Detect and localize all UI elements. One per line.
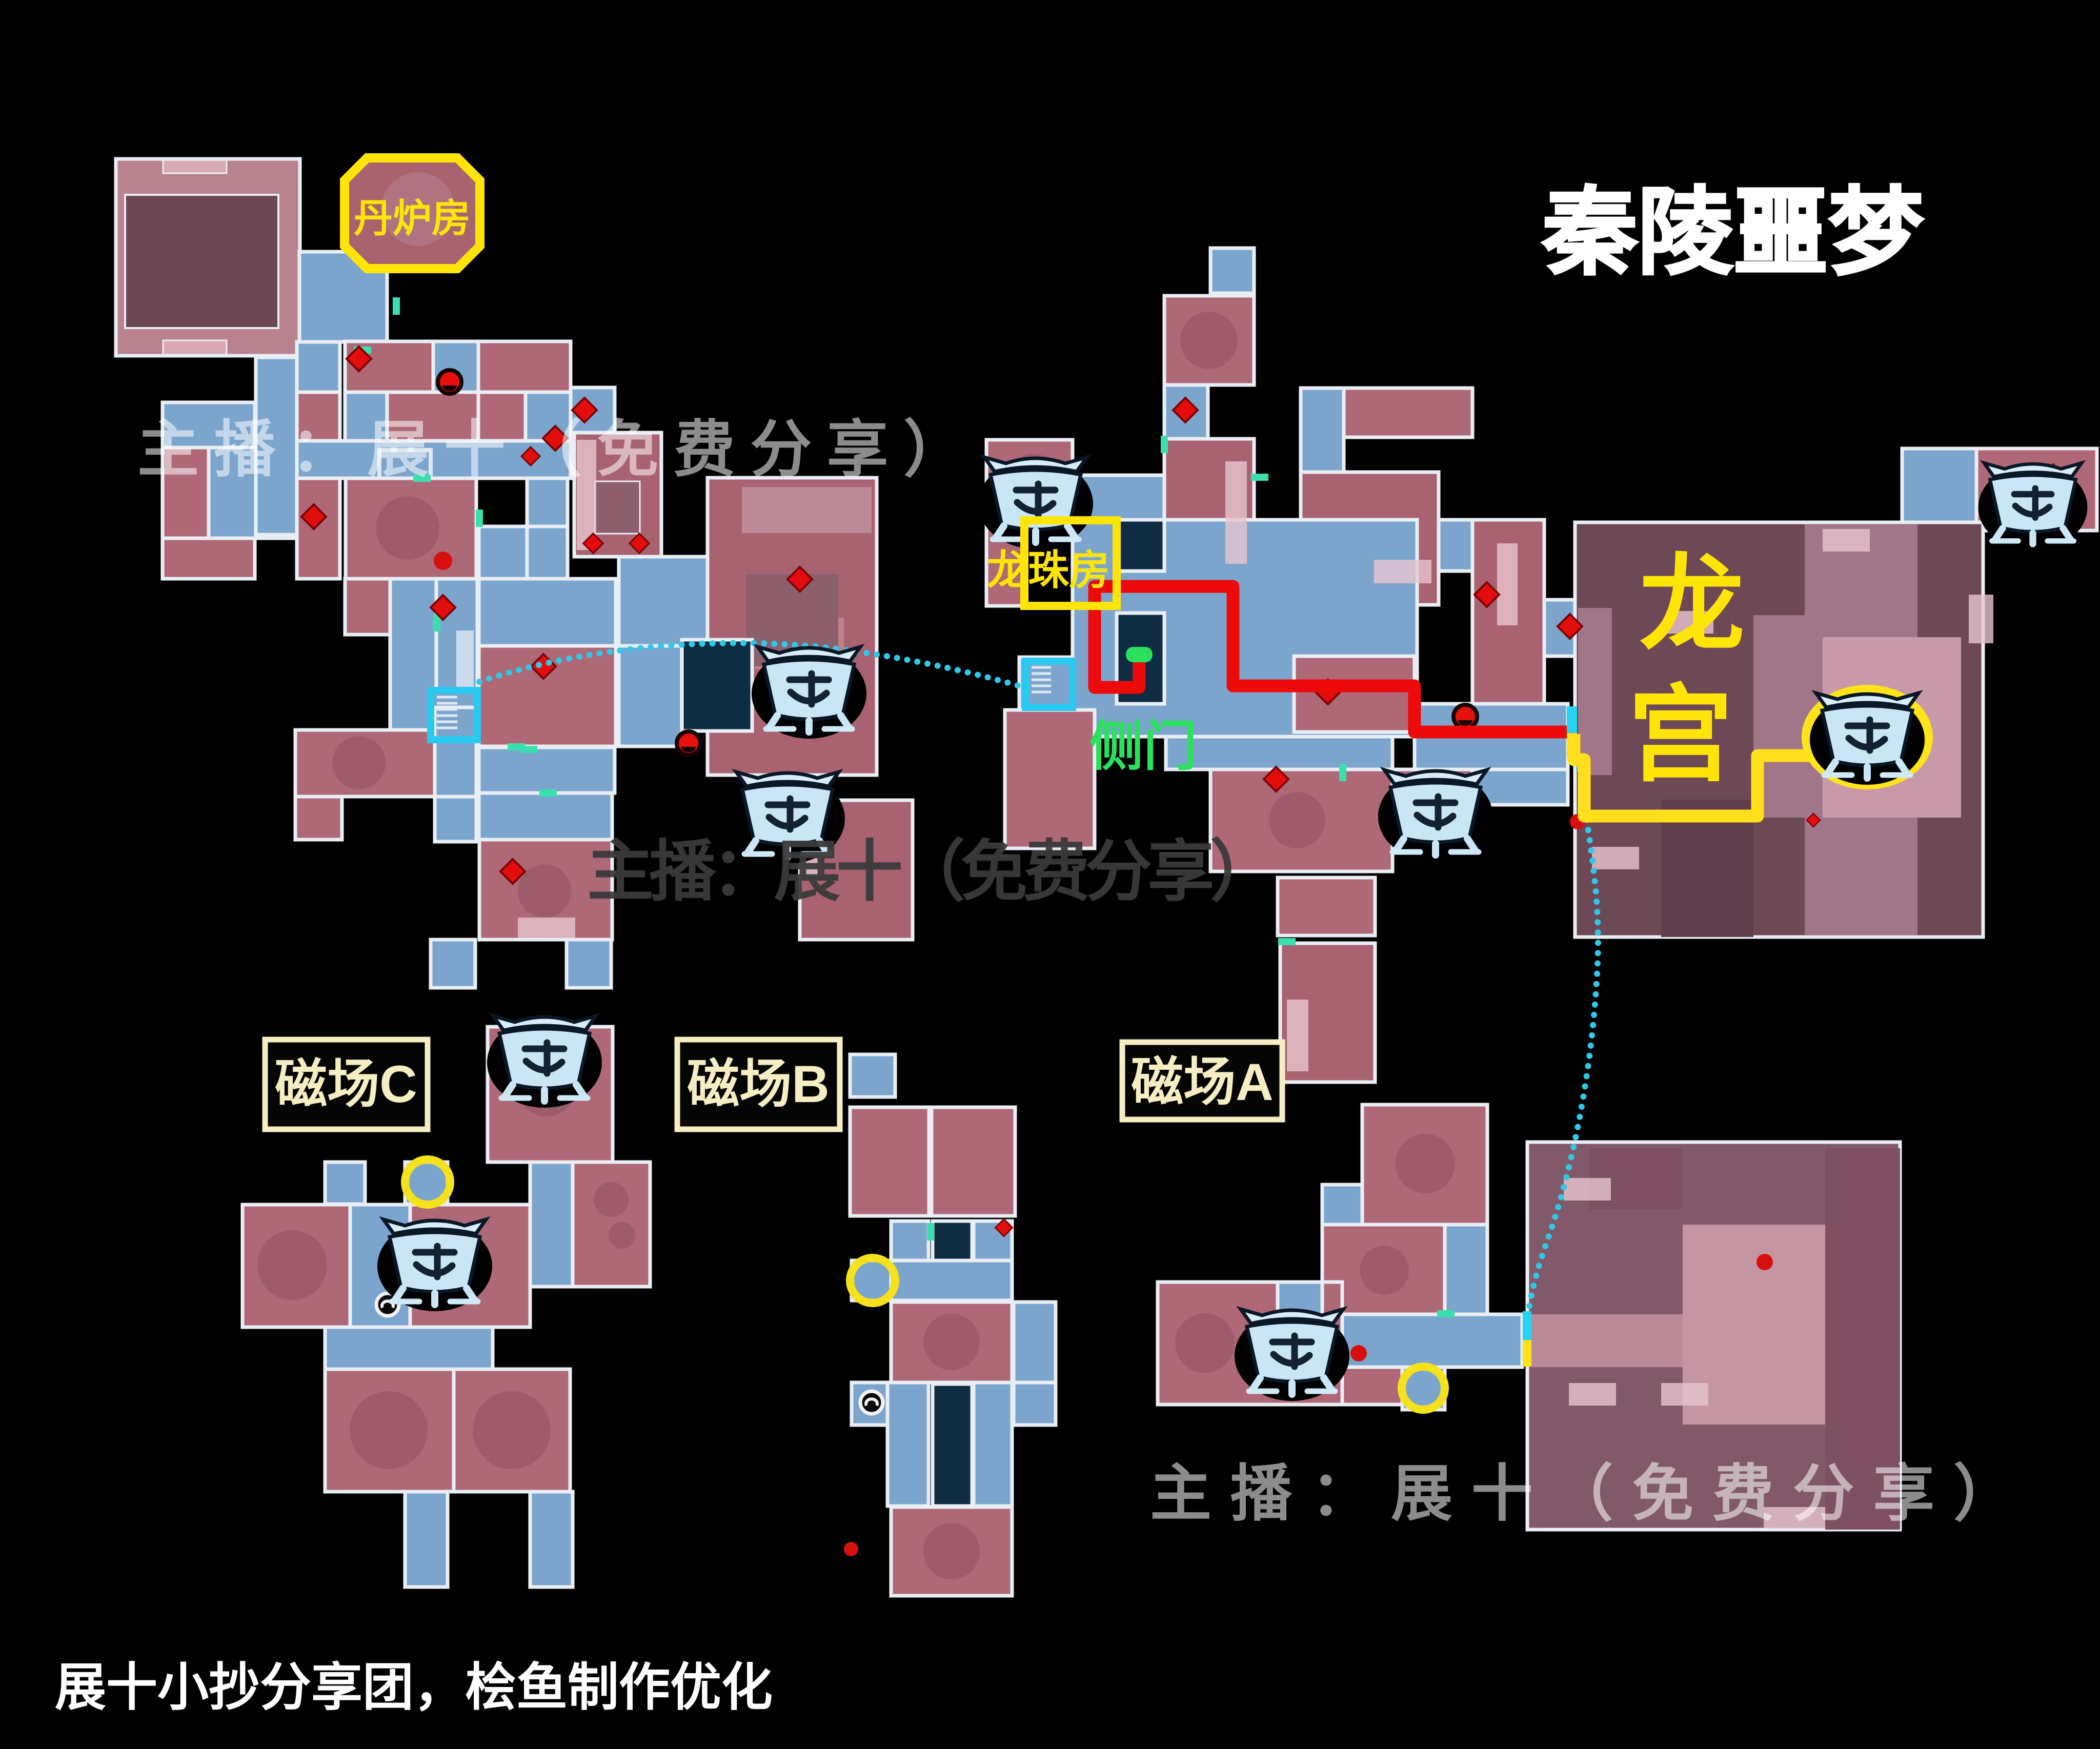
svg-text:磁场B: 磁场B [687, 1055, 830, 1113]
svg-text:侧门: 侧门 [1089, 717, 1197, 777]
svg-text:磁场A: 磁场A [1131, 1053, 1274, 1111]
svg-text:龙: 龙 [1640, 546, 1745, 663]
svg-text:秦陵噩梦: 秦陵噩梦 [1542, 180, 1924, 286]
svg-text:丹炉房: 丹炉房 [354, 197, 471, 240]
svg-text:宫: 宫 [1628, 677, 1733, 794]
svg-text:主播：展十（免费分享）: 主播：展十（免费分享） [1150, 1459, 2015, 1528]
svg-text:龙珠房: 龙珠房 [987, 547, 1110, 593]
svg-text:展十小抄分享团，桧鱼制作优化: 展十小抄分享团，桧鱼制作优化 [55, 1659, 773, 1716]
svg-text:磁场C: 磁场C [275, 1055, 417, 1113]
svg-text:主播：展十（免费分享）: 主播：展十（免费分享） [137, 415, 965, 484]
svg-text:主播：展十（免费分享）: 主播：展十（免费分享） [587, 834, 1277, 909]
